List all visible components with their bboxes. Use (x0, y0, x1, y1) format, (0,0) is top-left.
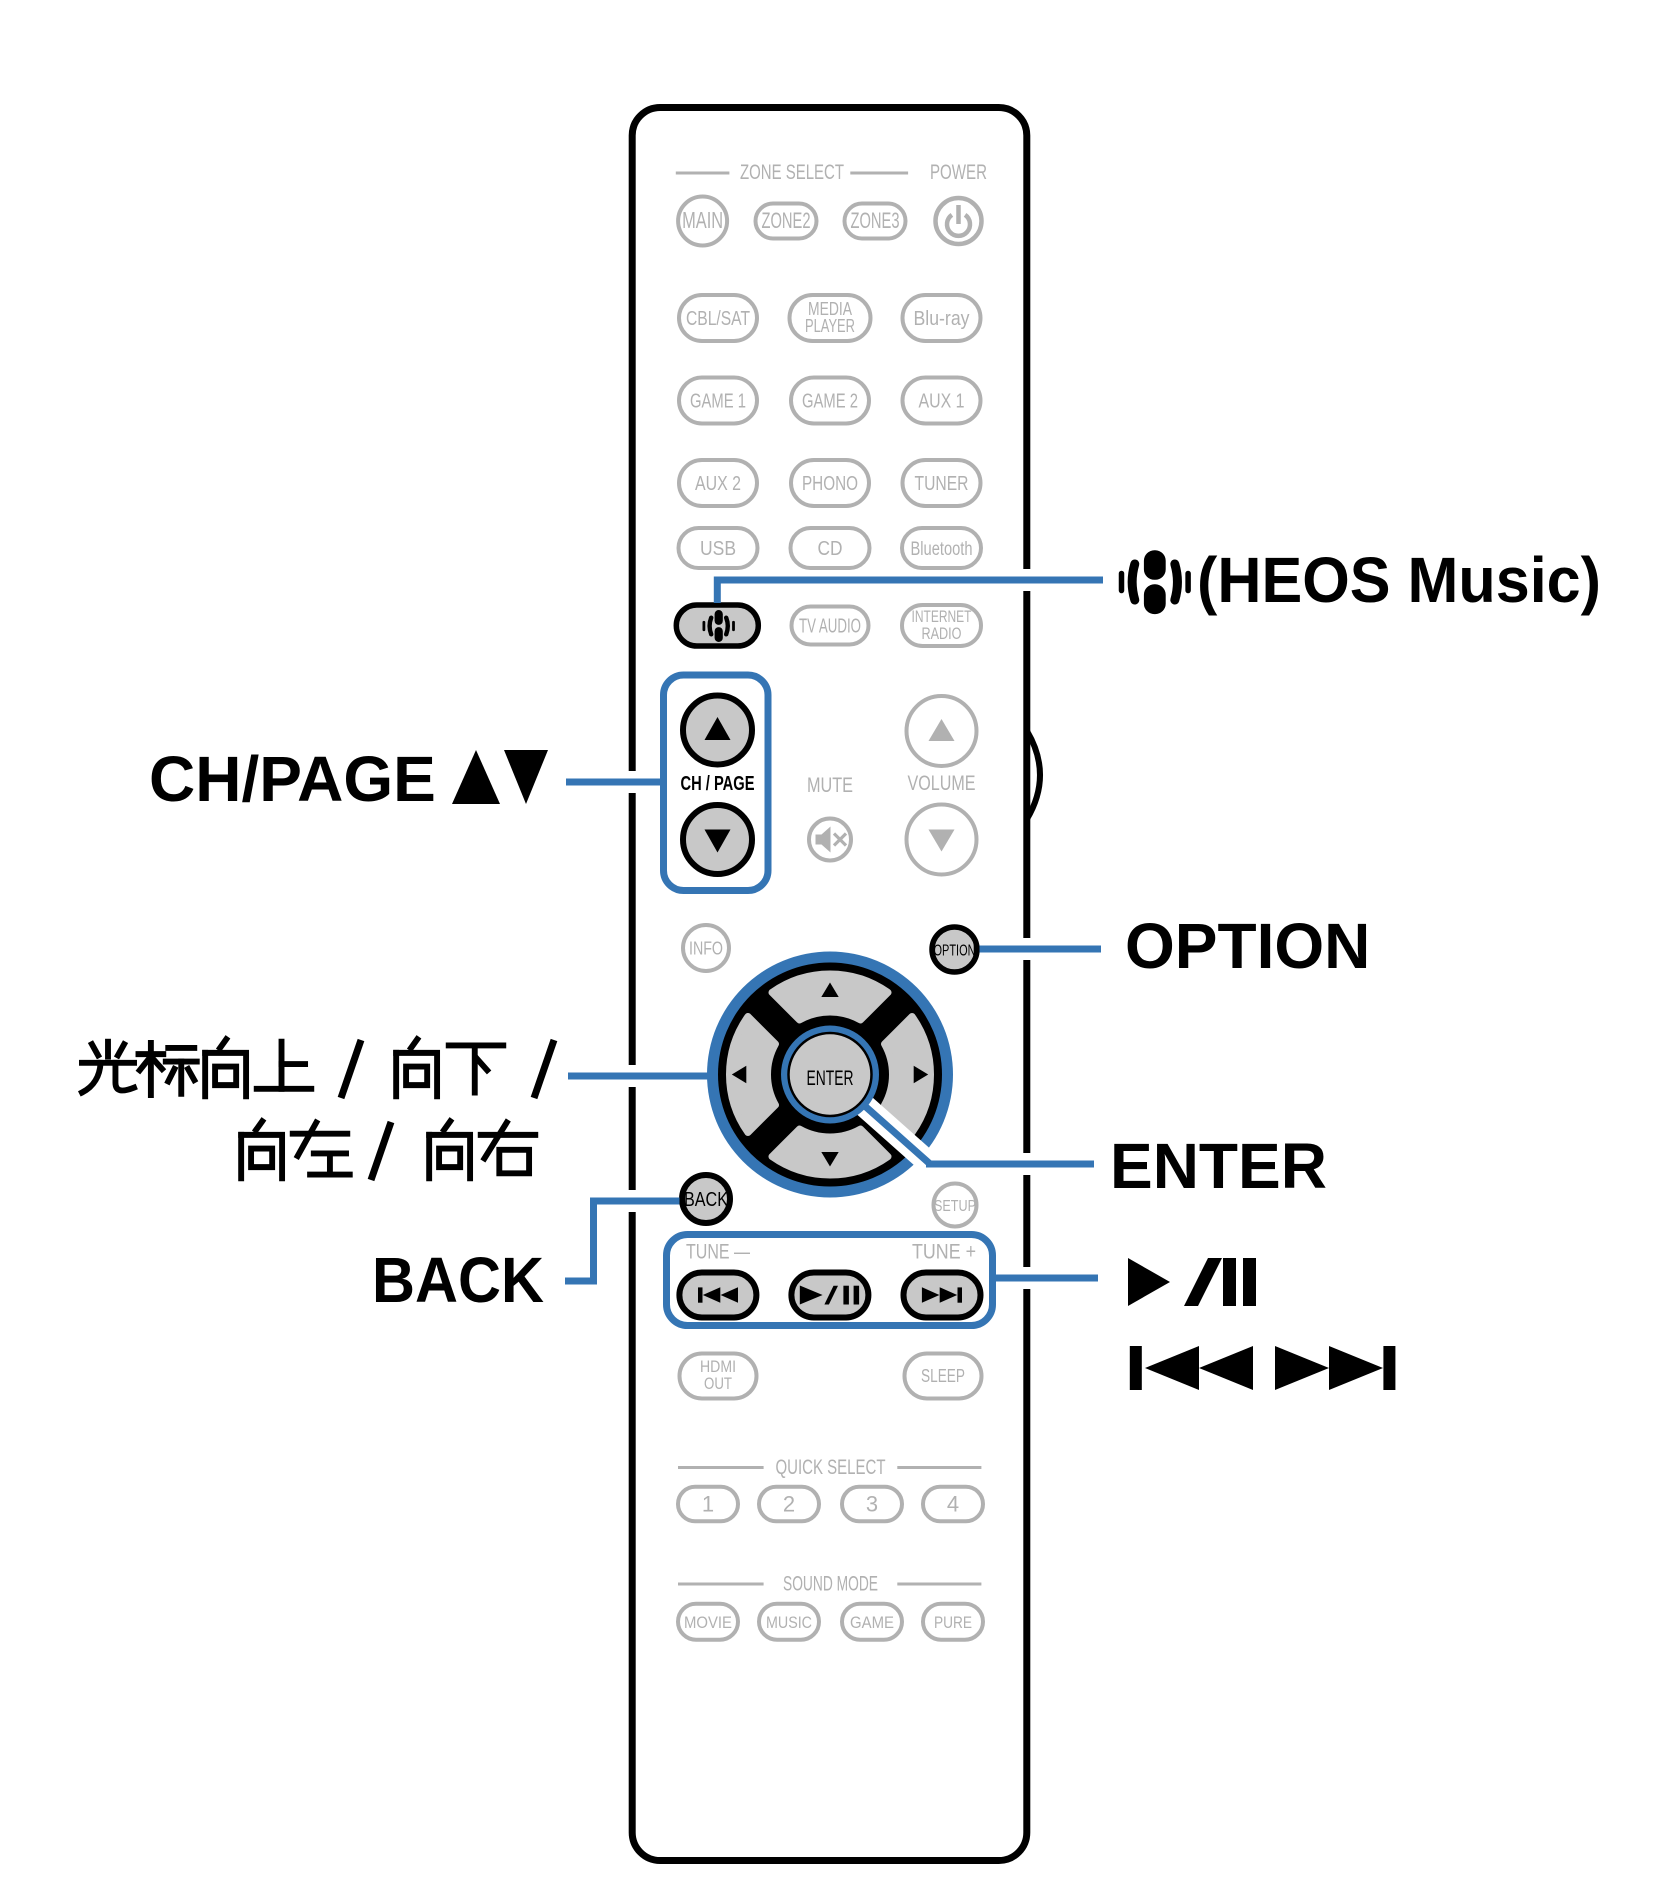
svg-text:AUX 2: AUX 2 (695, 473, 741, 495)
svg-text:OPTION: OPTION (1125, 910, 1370, 982)
svg-text:AUX 1: AUX 1 (919, 391, 965, 413)
svg-text:(HEOS Music): (HEOS Music) (1197, 544, 1601, 616)
svg-text:POWER: POWER (930, 161, 987, 184)
svg-text:MUTE: MUTE (807, 774, 853, 797)
svg-text:TUNE —: TUNE — (686, 1241, 750, 1264)
svg-text:4: 4 (947, 1492, 959, 1517)
svg-text:ZONE2: ZONE2 (762, 208, 811, 233)
svg-text:ENTER: ENTER (807, 1067, 854, 1090)
svg-text:2: 2 (783, 1492, 795, 1517)
svg-text:Bluetooth: Bluetooth (911, 539, 973, 560)
svg-text:ENTER: ENTER (1110, 1130, 1327, 1202)
svg-text:OPTION: OPTION (934, 943, 976, 960)
svg-text:Blu-ray: Blu-ray (914, 308, 970, 330)
svg-text:CH/PAGE: CH/PAGE (149, 743, 436, 815)
svg-text:PLAYER: PLAYER (805, 316, 855, 336)
svg-text:CH / PAGE: CH / PAGE (681, 773, 755, 795)
svg-text:RADIO: RADIO (922, 624, 962, 643)
svg-text:OUT: OUT (704, 1374, 732, 1393)
svg-text:TUNER: TUNER (915, 473, 969, 495)
svg-text:3: 3 (866, 1492, 878, 1517)
svg-text:GAME: GAME (850, 1613, 894, 1632)
svg-text:SETUP: SETUP (934, 1198, 976, 1215)
svg-text:SOUND MODE: SOUND MODE (783, 1573, 878, 1596)
svg-text:MUSIC: MUSIC (766, 1613, 812, 1632)
svg-text:TV AUDIO: TV AUDIO (799, 616, 861, 638)
svg-text:PHONO: PHONO (802, 473, 858, 495)
svg-text:BACK: BACK (372, 1244, 544, 1316)
svg-text:INFO: INFO (689, 939, 723, 959)
svg-text:MAIN: MAIN (682, 207, 723, 233)
svg-text:1: 1 (702, 1492, 714, 1517)
svg-text:CD: CD (818, 538, 843, 560)
svg-text:GAME 2: GAME 2 (802, 391, 858, 413)
svg-text:BACK: BACK (684, 1189, 729, 1211)
svg-text:MOVIE: MOVIE (684, 1613, 732, 1632)
svg-text:VOLUME: VOLUME (908, 772, 976, 795)
svg-text:GAME 1: GAME 1 (690, 391, 746, 413)
svg-text:ZONE SELECT: ZONE SELECT (740, 161, 844, 184)
svg-text:QUICK SELECT: QUICK SELECT (776, 1456, 886, 1479)
svg-text:PURE: PURE (934, 1613, 972, 1632)
svg-text:USB: USB (700, 538, 736, 560)
svg-text:TUNE +: TUNE + (912, 1241, 976, 1264)
svg-text:ZONE3: ZONE3 (851, 208, 900, 233)
svg-text:CBL/SAT: CBL/SAT (686, 308, 750, 330)
svg-text:SLEEP: SLEEP (921, 1366, 965, 1386)
